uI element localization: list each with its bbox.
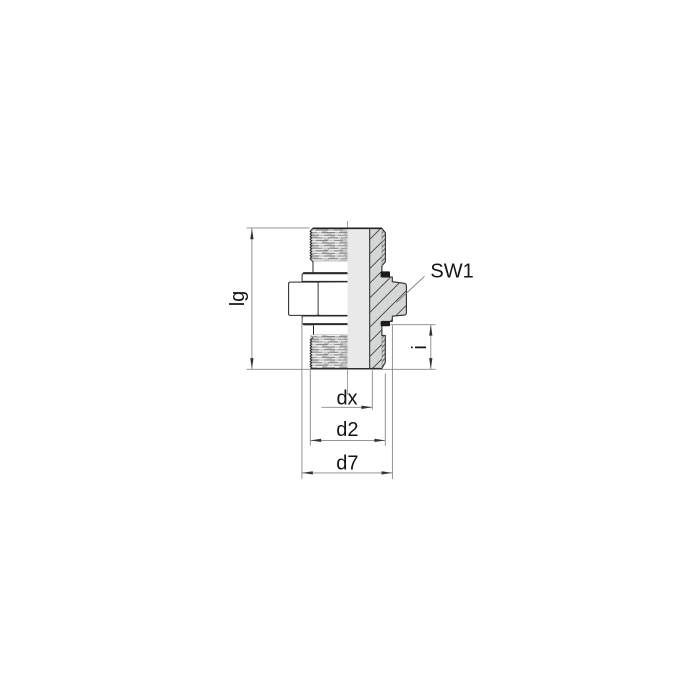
svg-text:d2: d2 <box>336 419 358 441</box>
svg-text:d7: d7 <box>336 453 358 475</box>
svg-text:i: i <box>409 345 431 349</box>
svg-text:SW1: SW1 <box>430 260 473 282</box>
svg-text:lg: lg <box>227 291 249 307</box>
svg-text:dx: dx <box>336 387 357 409</box>
